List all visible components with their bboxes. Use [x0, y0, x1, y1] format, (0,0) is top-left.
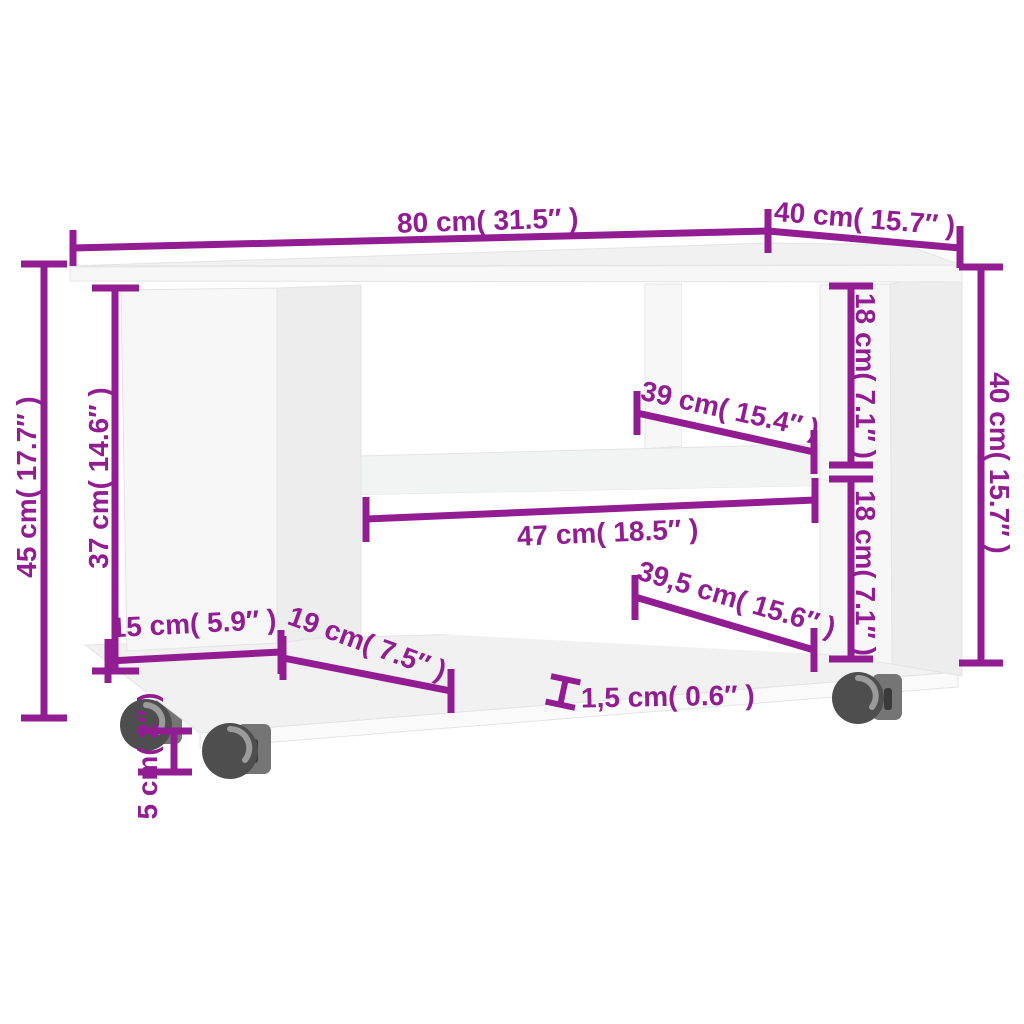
- dim-side-height: 40 cm( 15.7″ ): [959, 267, 1015, 663]
- top-left-opening: [361, 284, 645, 456]
- castor-notch: [884, 688, 892, 710]
- dim-height: 45 cm( 17.7″ ): [11, 264, 67, 718]
- left-side-panel: [121, 288, 277, 651]
- dim-upper-compartment-label: 18 cm( 7.1″ ): [850, 293, 881, 459]
- dim-castor-height-label: 5 cm( 2″ ): [132, 692, 163, 819]
- dim-thickness-label: 1,5 cm( 0.6″ ): [581, 679, 755, 713]
- dim-panel-height-label: 37 cm( 14.6″ ): [83, 387, 114, 569]
- left-side-panel-inner-face: [277, 285, 361, 643]
- castor-front-left: [202, 723, 271, 779]
- dim-lower-compartment-label: 18 cm( 7.1″ ): [850, 490, 881, 656]
- right-side-panel-outer-face: [890, 270, 962, 676]
- top-panel-front-face: [70, 265, 962, 282]
- dim-side-height-label: 40 cm( 15.7″ ): [984, 372, 1015, 554]
- castor-front-right: [832, 672, 902, 724]
- dimension-diagram: 80 cm( 31.5″ ) 40 cm( 15.7″ ) 45 cm( 17.…: [0, 0, 1024, 1024]
- dim-width-label: 80 cm( 31.5″ ): [397, 202, 579, 238]
- dim-height-label: 45 cm( 17.7″ ): [11, 396, 42, 578]
